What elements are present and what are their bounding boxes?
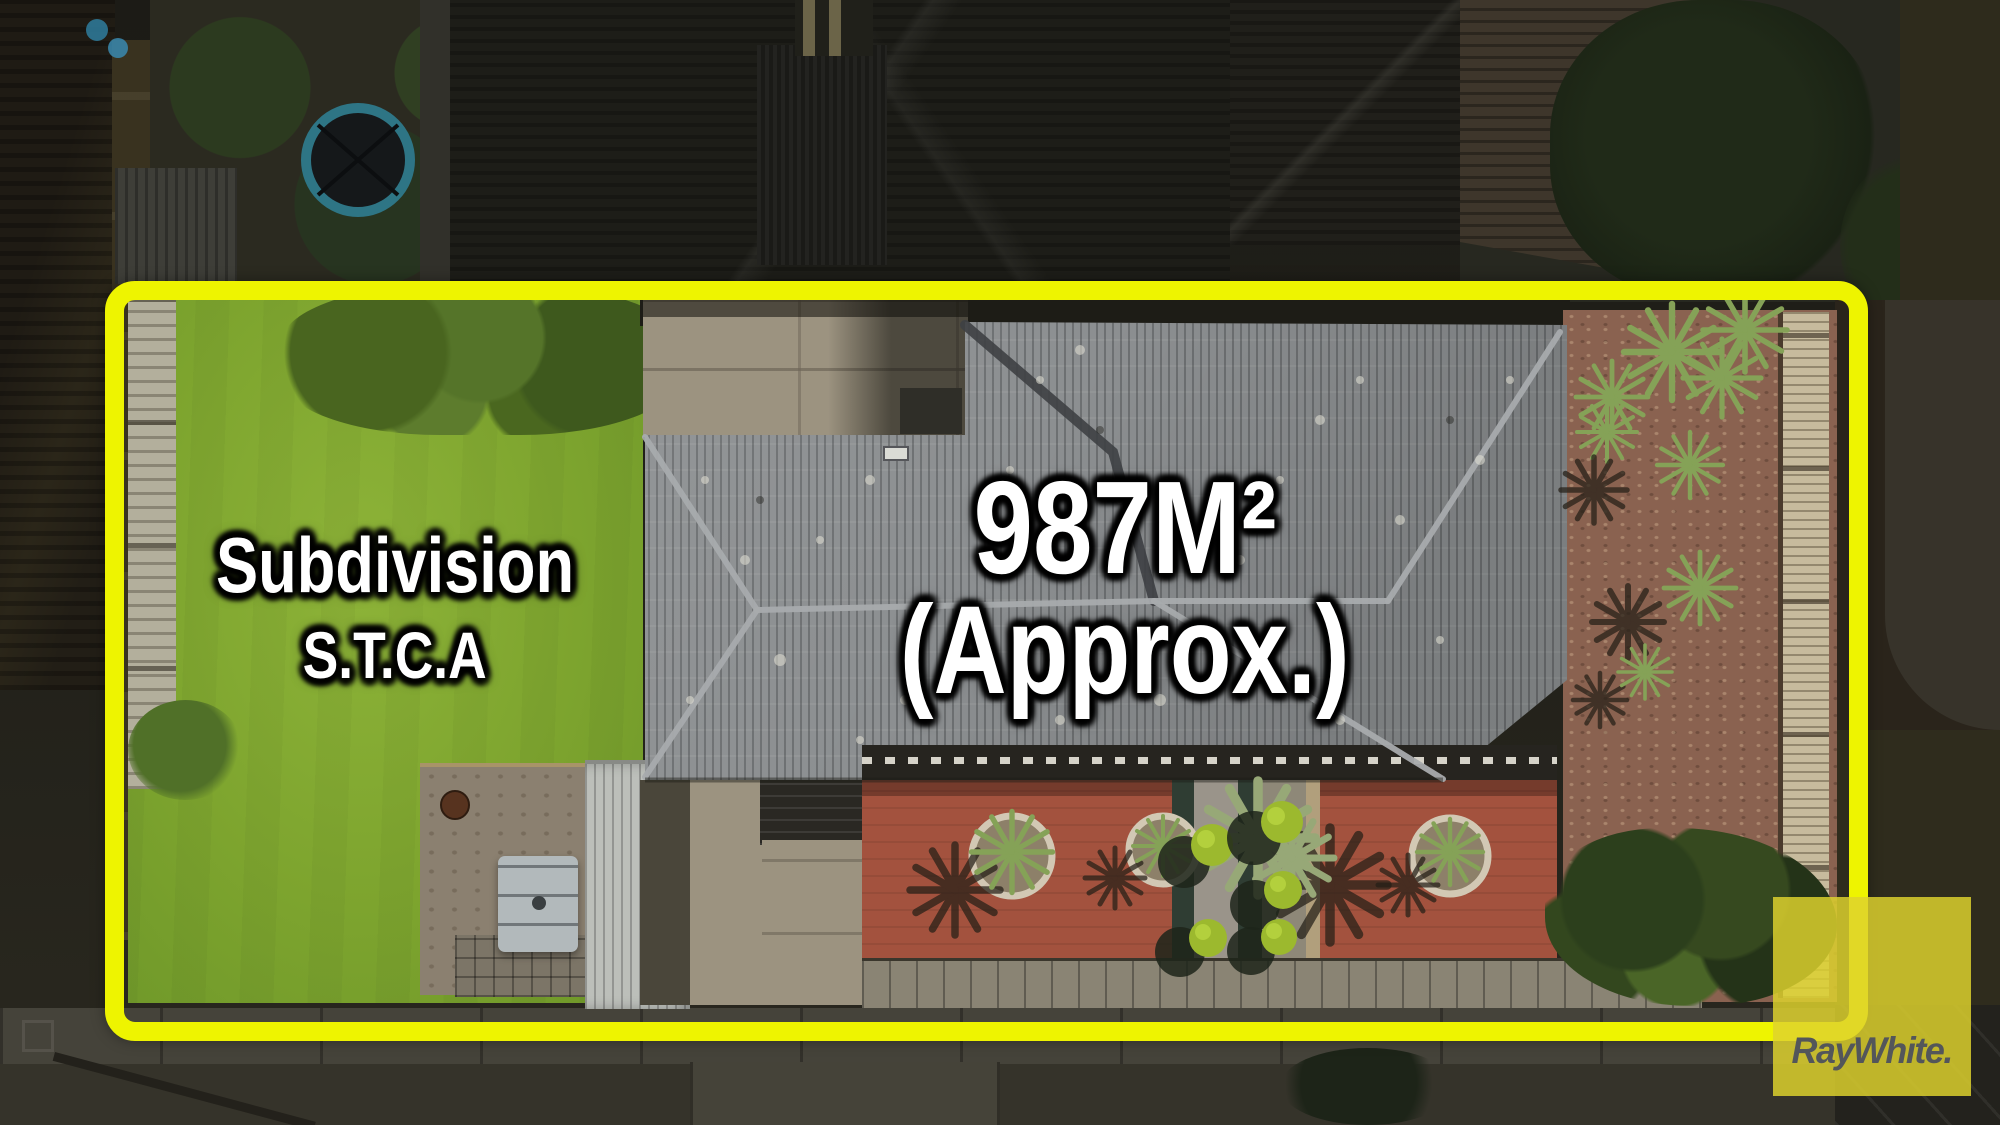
subdivision-label: Subdivision S.T.C.A xyxy=(160,526,630,688)
road-curve-right xyxy=(1885,300,2000,730)
driveway-crossing xyxy=(690,1062,1000,1125)
raywhite-wordmark: RayWhite. xyxy=(1792,1030,1952,1072)
raywhite-logo: RayWhite. xyxy=(1773,897,1971,1096)
neighbor-roof-left xyxy=(0,0,115,690)
land-area-approx: (Approx.) xyxy=(900,588,1350,713)
street-shrub xyxy=(1280,1048,1455,1125)
dry-grass-top-right xyxy=(1900,0,2000,300)
neighbor-metal-roof xyxy=(757,45,887,265)
tree-canopy-top-right xyxy=(1550,0,1880,300)
land-area-label: 987M² (Approx.) xyxy=(805,462,1445,713)
neighbor-shed-roof xyxy=(115,168,237,284)
utility-pit-cover xyxy=(22,1020,54,1052)
subdivision-label-line2: S.T.C.A xyxy=(303,622,487,688)
neighbor-skylight-windows xyxy=(795,0,873,56)
nature-strip-bottom xyxy=(0,1064,2000,1125)
aerial-property-photo: Subdivision S.T.C.A 987M² (Approx.) RayW… xyxy=(0,0,2000,1125)
neighbor-roof-top-right xyxy=(1230,0,1465,245)
land-area-value: 987M² xyxy=(973,462,1276,594)
subdivision-label-line1: Subdivision xyxy=(216,526,574,604)
